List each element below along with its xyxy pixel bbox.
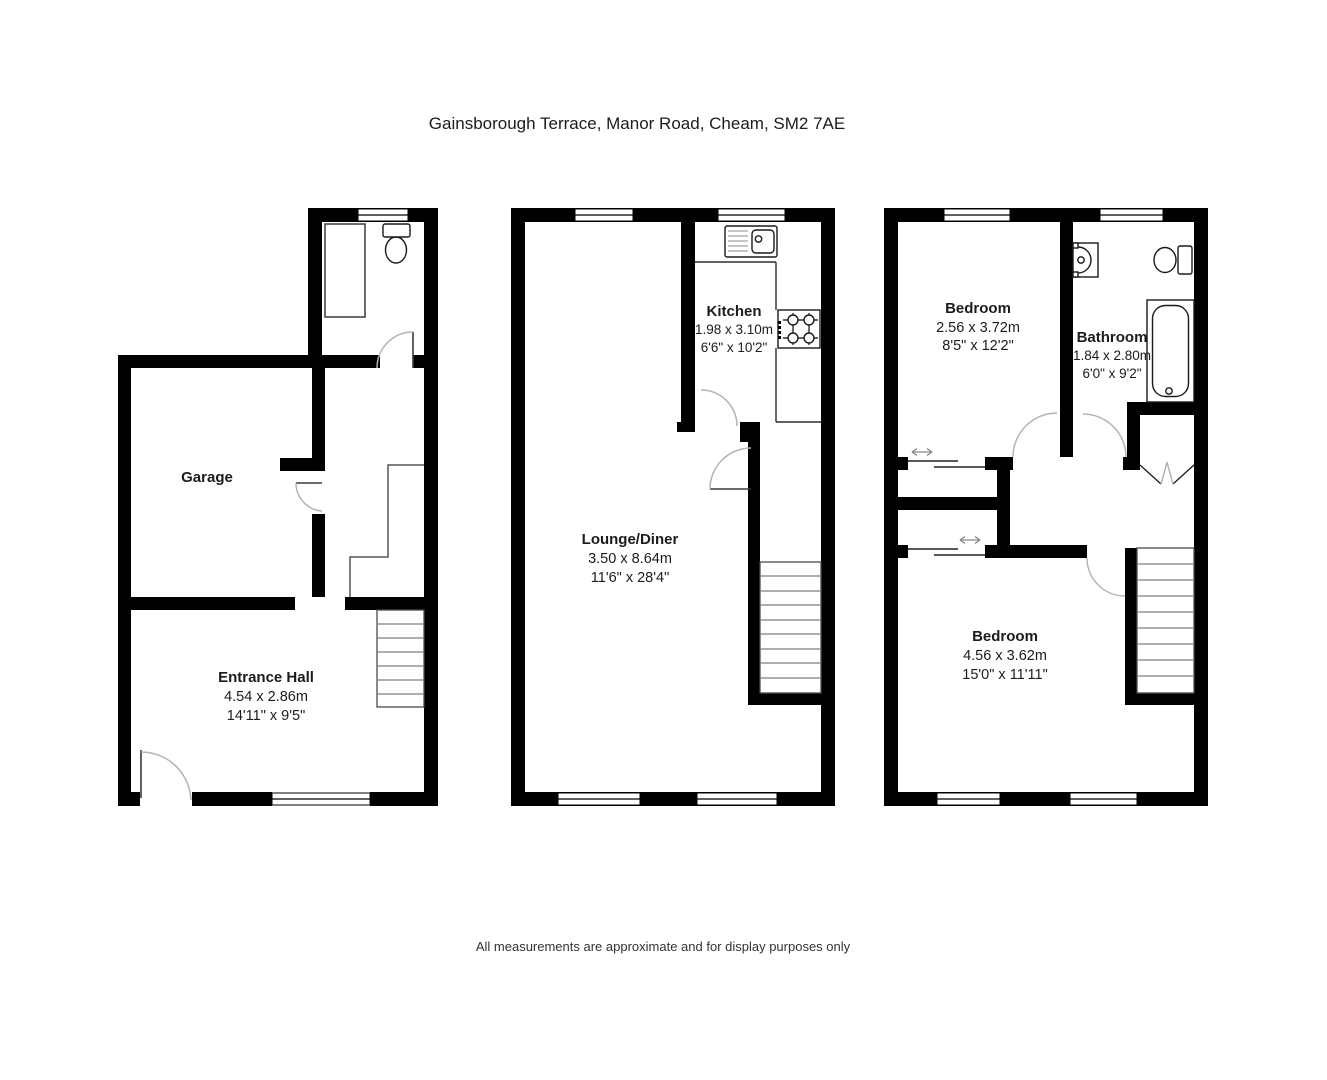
sliding-door-front-wardrobe (908, 449, 985, 468)
lounge-window-top (575, 209, 633, 221)
toilet-fixture-second (1154, 246, 1192, 274)
entrance-hall-label: Entrance Hall (218, 669, 314, 686)
lounge-diner-label: Lounge/Diner (582, 531, 679, 548)
floorplan-drawing: Gainsborough Terrace, Manor Road, Cheam,… (0, 0, 1327, 1080)
hob-fixture (778, 310, 820, 348)
lounge-diner-metric: 3.50 x 8.64m (588, 551, 672, 567)
page-title: Gainsborough Terrace, Manor Road, Cheam,… (429, 114, 845, 133)
ground-floor-plan: Garage Entrance Hall 4.54 x 2.86m 14'11"… (118, 208, 438, 806)
first-floor-stairs (760, 562, 821, 693)
bedroom-front-window (944, 209, 1010, 221)
bathroom-door (1083, 414, 1126, 457)
second-floor-stairs (1137, 548, 1194, 693)
bedroom-back-imperial: 15'0" x 11'11" (962, 667, 1047, 683)
garage-door (296, 483, 322, 511)
bedroom-back-label: Bedroom (972, 628, 1038, 645)
bedroom-front-label: Bedroom (945, 300, 1011, 317)
first-floor-walls (511, 208, 835, 806)
bathtub-fixture (1147, 300, 1194, 402)
bathroom-window (1100, 209, 1163, 221)
garage-label: Garage (181, 469, 233, 486)
lounge-window-bottom-right (697, 793, 777, 805)
second-floor-plan: Bedroom 2.56 x 3.72m 8'5" x 12'2" Bathro… (884, 208, 1208, 806)
wc-door (377, 332, 413, 368)
disclaimer-text: All measurements are approximate and for… (476, 939, 851, 954)
bathroom-label: Bathroom (1077, 329, 1148, 346)
bedroom-back-window-left (937, 793, 1000, 805)
lounge-window-bottom-left (558, 793, 640, 805)
bathroom-imperial: 6'0" x 9'2" (1082, 366, 1141, 381)
bedroom-front-imperial: 8'5" x 12'2" (942, 338, 1013, 354)
entrance-hall-metric: 4.54 x 2.86m (224, 689, 308, 705)
lounge-door (710, 448, 751, 489)
floorplan-page: Gainsborough Terrace, Manor Road, Cheam,… (0, 0, 1327, 1080)
second-floor-walls (884, 208, 1208, 806)
wc-enclosure-outline (325, 224, 365, 317)
toilet-fixture (383, 224, 410, 263)
entrance-hall-window (272, 793, 370, 805)
kitchen-label: Kitchen (706, 303, 761, 320)
bathroom-metric: 1.84 x 2.80m (1073, 348, 1151, 363)
cupboard-bifold-doors (1140, 462, 1194, 484)
entrance-hall-imperial: 14'11" x 9'5" (227, 708, 305, 724)
kitchen-window (718, 209, 785, 221)
wc-window (358, 209, 408, 221)
kitchen-metric: 1.98 x 3.10m (695, 322, 773, 337)
basin-fixture (1073, 243, 1098, 277)
lounge-diner-imperial: 11'6" x 28'4" (591, 570, 669, 586)
stair-outline (350, 465, 424, 597)
bedroom-back-door (1087, 558, 1125, 596)
ground-floor-stairs (377, 610, 424, 707)
bedroom-back-window-right (1070, 793, 1137, 805)
bedroom-front-door (1013, 413, 1057, 457)
first-floor-plan: Kitchen 1.98 x 3.10m 6'6" x 10'2" Lounge… (511, 208, 835, 806)
kitchen-door (701, 390, 737, 426)
front-door (141, 750, 191, 800)
bedroom-front-metric: 2.56 x 3.72m (936, 320, 1020, 336)
kitchen-imperial: 6'6" x 10'2" (701, 340, 768, 355)
sliding-door-back-wardrobe (908, 537, 985, 556)
bedroom-back-metric: 4.56 x 3.62m (963, 648, 1047, 664)
sink-drainer-fixture (725, 226, 777, 257)
